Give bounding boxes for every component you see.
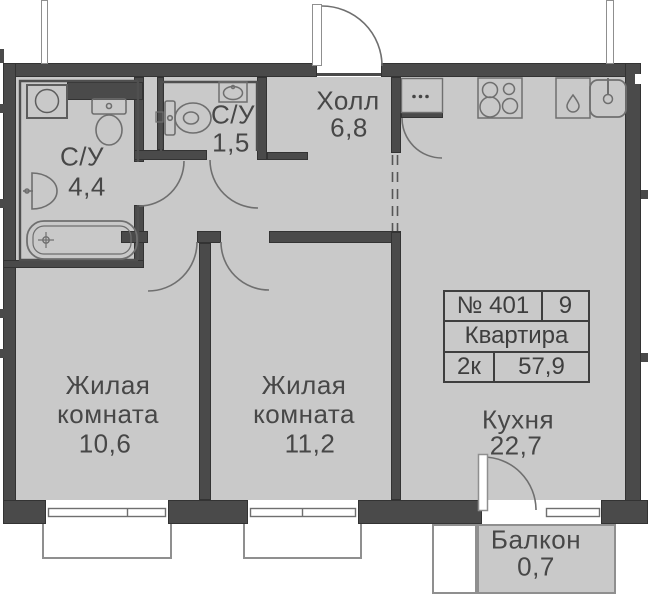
wall-segment [197, 231, 221, 243]
wall-joint [641, 353, 648, 362]
neighbour-wall-stub [606, 0, 614, 64]
rooms-count: 2к [445, 353, 493, 381]
duct-shaft [67, 82, 143, 100]
window-sill-1 [42, 521, 172, 559]
room-label-hall: Холл [316, 87, 379, 116]
room-area-balcony: 0,7 [517, 553, 555, 582]
wall-joint [0, 104, 4, 113]
neighbour-wall-stub [41, 0, 48, 64]
room-label-living-2: Жилая комната [229, 371, 379, 429]
room-label-bathroom-small: С/У [211, 101, 255, 130]
room-label-balcony: Балкон [491, 526, 581, 555]
wall-notch [635, 74, 648, 84]
info-row-type: Квартира [445, 320, 588, 350]
room-area-kitchen: 22,7 [490, 432, 543, 461]
window-sill-2 [243, 521, 362, 559]
wall-segment [3, 63, 317, 77]
window-opening [46, 503, 168, 524]
wall-joint [0, 49, 4, 63]
wardrobe-base [401, 112, 443, 118]
room-area-living-1: 10,6 [79, 430, 132, 459]
info-row-area: 2к 57,9 [445, 351, 588, 381]
wall-segment [157, 77, 164, 150]
unit-type: Квартира [445, 322, 588, 350]
unit-number: № 401 [445, 292, 541, 320]
room-label-bathroom-large: С/У [60, 143, 104, 172]
room-area-hall: 6,8 [330, 114, 368, 143]
wall-segment [134, 150, 207, 160]
room-area-living-2: 11,2 [285, 430, 336, 459]
wall-segment [358, 500, 482, 524]
entrance-door-leaf [312, 4, 322, 66]
wall-segment [269, 231, 401, 243]
info-row-number: № 401 9 [445, 292, 588, 320]
wall-joint [0, 199, 4, 208]
wall-segment [625, 63, 641, 524]
wall-segment [3, 63, 16, 524]
wall-segment [121, 231, 148, 243]
wall-segment [257, 77, 267, 160]
floor-number: 9 [541, 292, 588, 320]
balcony-slab-open [432, 524, 477, 594]
wall-joint [0, 349, 4, 358]
room-label-living-1: Жилая комната [33, 371, 183, 429]
wall-segment [3, 260, 144, 268]
room-area-bathroom-large: 4,4 [68, 173, 106, 202]
total-area: 57,9 [493, 353, 588, 381]
wall-joint [0, 309, 4, 318]
floor-plan: С/У 4,4 С/У 1,5 Холл 6,8 Жилая комната 1… [0, 0, 648, 600]
wall-segment [199, 243, 211, 500]
balcony-door-opening [482, 503, 601, 524]
wall-segment [381, 63, 641, 77]
wall-segment [267, 152, 308, 160]
wall-segment [601, 500, 648, 524]
wall-segment [168, 500, 248, 524]
room-area-bathroom-small: 1,5 [212, 129, 250, 158]
wall-segment [3, 500, 46, 524]
entrance-door-arc [322, 6, 382, 66]
entrance-threshold [317, 73, 381, 76]
window-opening [248, 503, 358, 524]
wall-joint [641, 190, 648, 199]
wall-segment [391, 77, 401, 153]
apartment-info-table: № 401 9 Квартира 2к 57,9 [443, 290, 590, 383]
wall-segment [391, 232, 401, 500]
